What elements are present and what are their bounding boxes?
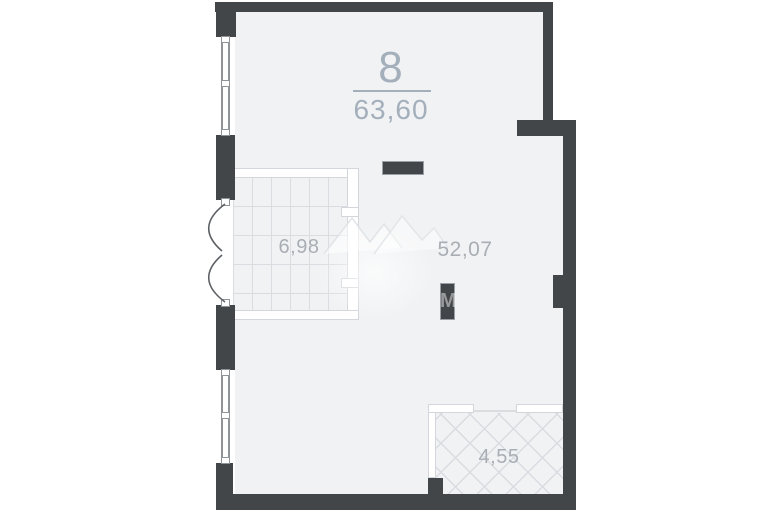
watermark-letter: M bbox=[440, 291, 457, 311]
window-upper bbox=[221, 37, 230, 135]
pier-left-lower bbox=[216, 305, 235, 370]
wall-bottom bbox=[216, 494, 576, 510]
floor-plan: M 8 63,60 6,98 52,07 4,55 bbox=[0, 0, 770, 510]
wall-stub-bathroom bbox=[428, 478, 443, 498]
window-mullion bbox=[221, 412, 230, 419]
unit-total-area: 63,60 bbox=[331, 96, 451, 124]
bathroom-partition-top-right bbox=[516, 404, 563, 413]
loggia-area-label: 6,98 bbox=[264, 237, 334, 257]
window-lower bbox=[221, 370, 230, 463]
bathroom-area-label: 4,55 bbox=[464, 447, 534, 467]
wall-right-upper bbox=[543, 2, 553, 122]
window-mullion bbox=[221, 129, 230, 136]
double-door-swing-icon bbox=[192, 200, 232, 308]
pier-top-left bbox=[216, 2, 236, 37]
wall-stub-top-middle bbox=[382, 161, 424, 175]
bathroom-partition-left bbox=[428, 404, 436, 478]
window-mullion bbox=[221, 36, 230, 43]
window-mullion bbox=[221, 80, 230, 87]
wall-right-lower bbox=[563, 120, 576, 510]
pier-right-inner bbox=[553, 275, 563, 308]
loggia-partition-top bbox=[233, 168, 359, 178]
main-room-area-label: 52,07 bbox=[425, 239, 505, 260]
pier-left-upper bbox=[216, 135, 235, 200]
window-mullion bbox=[221, 457, 230, 464]
bathroom-partition-top-left bbox=[428, 404, 474, 413]
window-mullion bbox=[221, 369, 230, 376]
bathroom-door-threshold bbox=[474, 410, 516, 412]
wall-top bbox=[215, 2, 553, 12]
unit-number: 8 bbox=[331, 46, 451, 90]
unit-divider bbox=[353, 90, 431, 92]
